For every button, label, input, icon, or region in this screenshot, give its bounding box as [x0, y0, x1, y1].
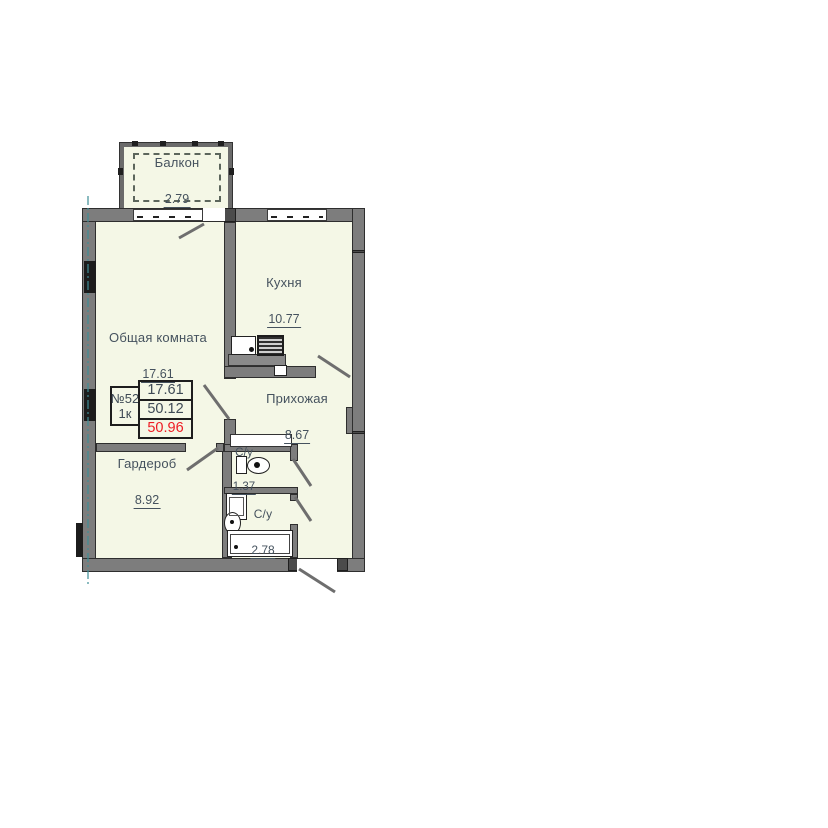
entry-door-opening — [297, 559, 337, 572]
room-area: 8.92 — [134, 493, 160, 509]
balcony-tick — [118, 168, 123, 175]
room-name: С/у — [250, 507, 275, 521]
unit-area-living: 17.61 — [138, 380, 193, 401]
window-glass-line — [137, 216, 199, 218]
room-name: Гардероб — [118, 456, 177, 471]
room-area: 2.78 — [250, 543, 275, 559]
floor-plan-canvas: Балкон 2.79 Кухня 10.77 Общая комната 17… — [0, 0, 828, 828]
room-name: С/у — [232, 447, 256, 459]
room-label-wc2: С/у 2.78 — [250, 507, 275, 559]
room-label-hall: Прихожая 8.67 — [266, 391, 328, 444]
room-name: Прихожая — [266, 391, 328, 406]
unit-area-main: 50.12 — [138, 399, 193, 420]
wall-right-outer — [352, 208, 365, 572]
room-label-living: Общая комната 17.61 — [109, 330, 207, 383]
wall-right-step — [346, 407, 353, 434]
balcony-door-opening — [203, 208, 225, 221]
wall-wc2-right-upper — [290, 494, 298, 501]
balcony-tick — [192, 141, 198, 146]
sink-drain-dot — [230, 520, 234, 524]
room-area: 10.77 — [267, 312, 300, 328]
wall-junction-top — [224, 208, 236, 222]
wall-kitchen-hall — [224, 366, 316, 378]
room-name: Кухня — [266, 275, 302, 290]
room-area: 1.37 — [232, 481, 256, 495]
unit-areas: 17.61 50.12 50.96 — [138, 380, 193, 439]
wall-duct-box — [274, 365, 287, 376]
unit-number: №52 — [111, 391, 139, 406]
wall-pilaster — [76, 523, 83, 557]
wall-right-tick — [352, 431, 365, 434]
unit-number-cell: №52 1к — [110, 386, 140, 426]
unit-type: 1к — [119, 406, 132, 421]
room-area: 2.79 — [164, 192, 190, 208]
balcony-tick — [218, 141, 224, 146]
wall-right-tick — [352, 250, 365, 253]
window-glass-line — [271, 216, 323, 218]
faucet-dot — [249, 347, 254, 352]
wall-pilaster — [84, 261, 96, 293]
wall-pilaster — [84, 389, 96, 421]
balcony-window — [133, 209, 203, 221]
room-name: Общая комната — [109, 330, 207, 345]
room-area: 8.67 — [284, 428, 310, 444]
unit-area-total: 50.96 — [138, 418, 193, 439]
kitchen-sink-icon — [231, 336, 256, 355]
bathtub-drain-dot — [234, 545, 238, 549]
stove-icon — [257, 335, 284, 356]
entry-jamb-right — [337, 558, 348, 571]
room-label-kitchen: Кухня 10.77 — [266, 275, 302, 328]
kitchen-window — [267, 209, 327, 221]
entry-door-swing — [299, 569, 335, 592]
room-label-wc1: С/у 1.37 — [232, 447, 256, 495]
room-name: Балкон — [155, 155, 200, 170]
room-label-balcony: Балкон 2.79 — [155, 155, 200, 208]
balcony-tick — [132, 141, 138, 146]
wall-wardrobe-top — [96, 443, 186, 452]
washing-machine-detail — [229, 497, 244, 516]
balcony-tick — [160, 141, 166, 146]
balcony-tick — [229, 168, 234, 175]
room-label-wardrobe: Гардероб 8.92 — [118, 456, 177, 509]
